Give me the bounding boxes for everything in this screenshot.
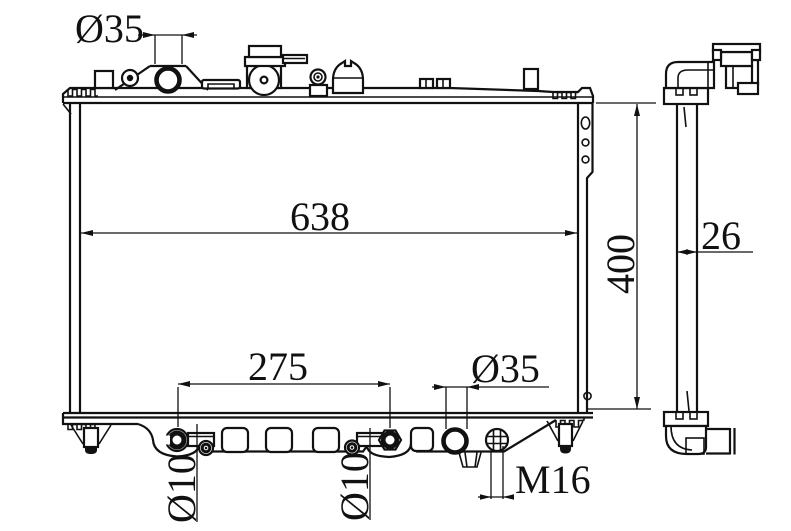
- core-thickness-label: 26: [701, 213, 741, 258]
- drain-plug: [486, 429, 508, 451]
- top-recess: [202, 80, 240, 89]
- right-plug: [547, 421, 583, 454]
- side-bottom-flange: [664, 412, 708, 426]
- bottom-tank: [63, 413, 593, 467]
- pin-spacing-label: 275: [248, 344, 308, 389]
- inlet-port: [157, 69, 180, 92]
- overflow-tube: [283, 55, 307, 63]
- dimension-drain-thread: M16: [478, 446, 591, 502]
- side-bracket: [581, 103, 592, 413]
- top-left-tab: [95, 71, 113, 88]
- clip-boss: [333, 61, 363, 93]
- left-grommet: [122, 70, 138, 86]
- outlet-port: [444, 430, 467, 453]
- radiator-drawing-page: Ø35 638 400 26 275: [0, 0, 791, 531]
- dimension-core-thickness: 26: [677, 213, 753, 258]
- top-tank: [63, 46, 593, 114]
- front-view: [63, 46, 593, 467]
- inlet-diameter-label: Ø35: [75, 6, 144, 51]
- side-outlet-pipe: [706, 428, 735, 455]
- overall-width-label: 638: [290, 194, 350, 239]
- dimension-inlet-diameter: Ø35: [75, 6, 197, 64]
- drain-hex: [459, 453, 481, 468]
- side-filler-cap: [713, 44, 760, 94]
- dimension-overall-height: 400: [586, 103, 656, 409]
- side-top-flange: [664, 88, 708, 104]
- cap-flange: [245, 57, 285, 66]
- pin-diameter-right-label: Ø10: [332, 452, 377, 521]
- side-inlet-elbow: [666, 62, 714, 88]
- radiator-drawing: Ø35 638 400 26 275: [0, 0, 791, 531]
- side-bottom-tank: [666, 426, 735, 455]
- top-left-serrations: [68, 89, 98, 96]
- right-grommet: [310, 70, 327, 97]
- dimension-overall-width: 638: [81, 194, 577, 239]
- top-clips: [420, 79, 450, 88]
- side-core: [677, 104, 697, 412]
- mounting-pin-left: [164, 429, 214, 455]
- overall-height-label: 400: [598, 234, 643, 294]
- top-right-tab: [524, 69, 538, 89]
- outlet-diameter-label: Ø35: [471, 346, 540, 391]
- drain-thread-label: M16: [515, 457, 591, 502]
- cap-top: [249, 46, 281, 57]
- pin-diameter-left-label: Ø10: [159, 454, 204, 523]
- mounting-pin-right: [345, 431, 401, 455]
- dimension-pin-spacing: 275: [178, 344, 390, 428]
